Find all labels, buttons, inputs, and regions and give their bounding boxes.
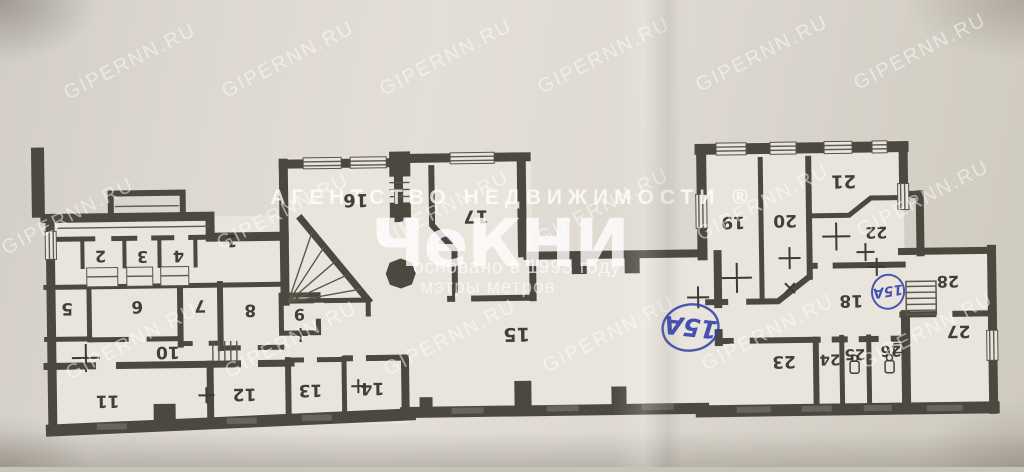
room-label-18: 18: [839, 290, 863, 310]
watermark-site: GIPERNN.RU: [218, 17, 358, 103]
watermark-site: GIPERNN.RU: [376, 15, 516, 101]
floor-plan-drawing: 1 2 3 4 5 6 7 8 9 10 11 12 13 14 15 16 1…: [0, 0, 1024, 467]
room-label-24: 24: [819, 350, 840, 368]
room-label-11: 11: [96, 390, 120, 410]
room-label-8: 8: [244, 300, 256, 320]
room-label-21: 21: [831, 170, 856, 191]
room-label-5: 5: [61, 298, 73, 318]
room-label-15: 15: [503, 323, 530, 345]
room-label-4: 4: [173, 247, 184, 266]
watermark-site: GIPERNN.RU: [534, 13, 674, 99]
room-label-20: 20: [773, 210, 797, 230]
room-label-10: 10: [156, 342, 180, 362]
watermark-site: GIPERNN.RU: [692, 11, 832, 97]
room-label-3: 3: [137, 247, 148, 266]
room-label-2: 2: [95, 247, 106, 266]
room-label-6: 6: [131, 296, 143, 316]
agency-founded: основано в 1993 году: [413, 257, 621, 278]
room-label-13: 13: [298, 380, 322, 400]
room-label-23: 23: [772, 351, 796, 371]
watermark-site: GIPERNN.RU: [850, 9, 990, 95]
agency-slogan: мэтры метров: [420, 277, 555, 298]
room-label-28: 28: [937, 272, 960, 291]
photographed-paper: 1 2 3 4 5 6 7 8 9 10 11 12 13 14 15 16 1…: [0, 0, 1024, 467]
watermark-site: GIPERNN.RU: [60, 19, 200, 105]
room-label-14: 14: [360, 378, 384, 398]
room-label-12: 12: [232, 384, 256, 404]
